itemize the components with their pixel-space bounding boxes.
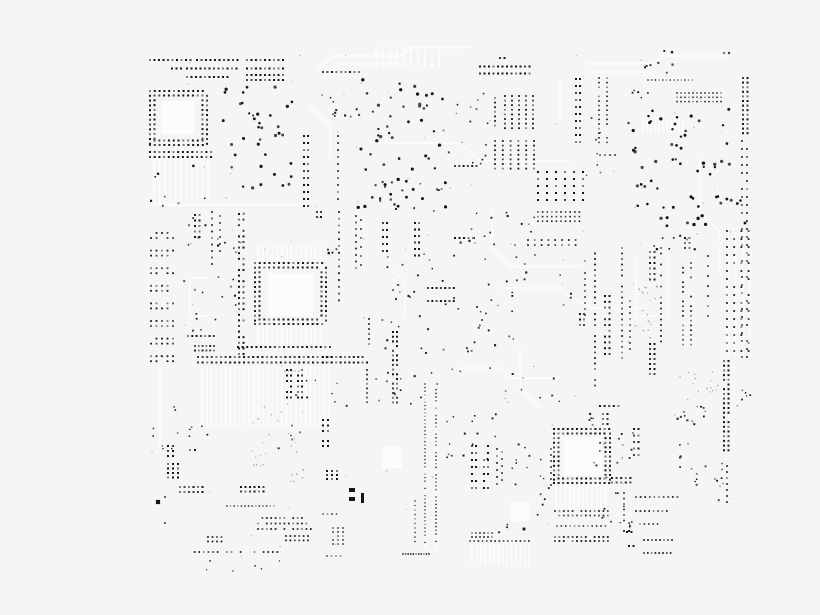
feature-bar-164 [349,497,355,501]
feature-row-36 [171,68,182,70]
feature-col-121 [621,247,623,359]
feature-grid-162 [326,470,338,480]
feature-row-48 [322,71,360,73]
feature-dot-176 [523,528,526,531]
feature-bar-165 [361,493,364,503]
feature-row-175 [469,540,529,542]
feature-chip-28 [268,273,313,316]
pcb-halftone-image [40,16,820,599]
feature-row-35 [246,59,284,61]
feature-row-38 [246,68,284,70]
feature-chip-29 [382,447,402,468]
feature-row-85 [237,346,331,348]
feature-dot-118 [744,222,747,225]
feature-dot-145 [164,522,166,524]
feature-col-96 [355,215,357,269]
feature-dot-144 [164,496,166,498]
pcb-artwork-canvas [40,16,820,599]
feature-chip-30 [510,502,530,521]
feature-col-122 [629,300,631,350]
feature-chip-27 [162,101,195,134]
feature-col-88 [211,211,213,265]
feature-dot-143 [156,500,160,504]
feature-bar-163 [349,488,355,492]
feature-chip-31 [564,437,602,475]
